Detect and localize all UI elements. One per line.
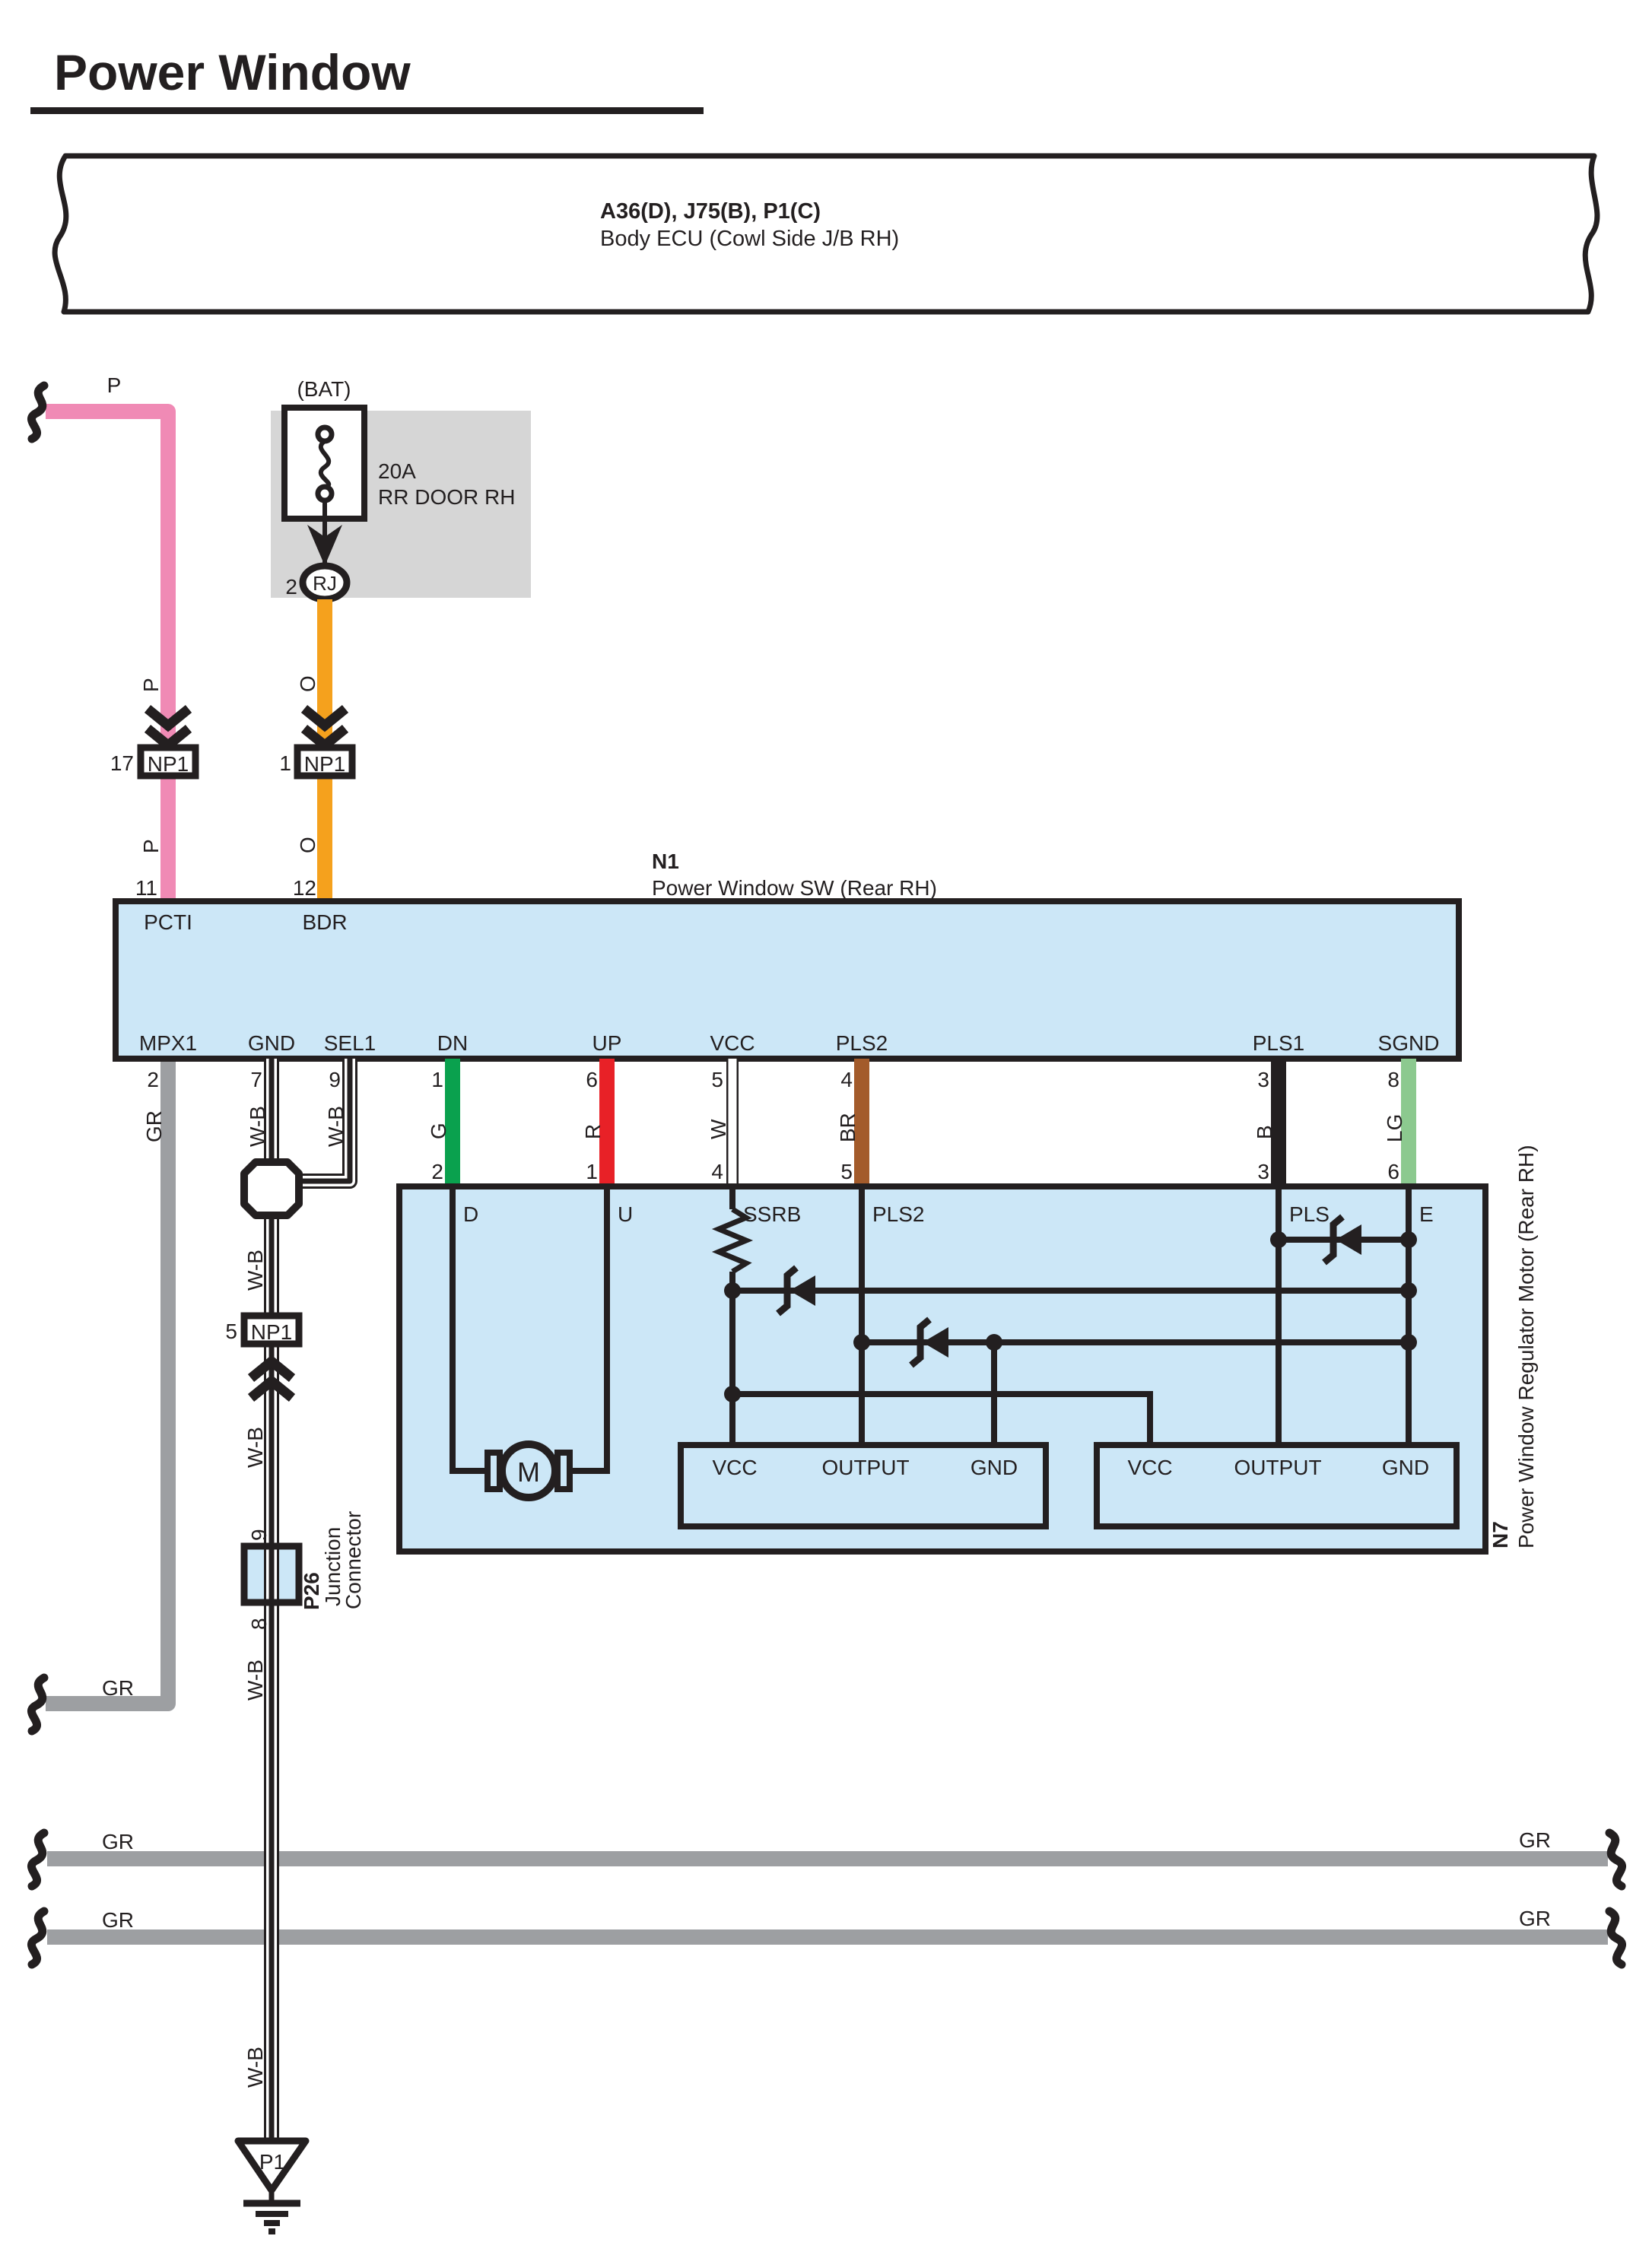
n1-name: Power Window SW (Rear RH) [652,876,937,900]
n1-pin-label: SGND [1378,1031,1440,1055]
n7-pin-label: PLS2 [872,1202,925,1226]
continuation-squiggle-icon [31,386,44,439]
wire-code: GR [142,1110,166,1142]
n1-bottom-pin-numbers: 2 7 9 1 6 5 4 3 8 [147,1068,1399,1091]
pin-number: 8 [1387,1068,1399,1091]
p26-pin-top: 9 [247,1529,271,1541]
wire-code-gr: GR [102,1676,134,1700]
junction-dot [1400,1231,1417,1248]
block-label: OUTPUT [1234,1456,1321,1479]
np1-left-label: NP1 [148,752,189,776]
rj-connector-label: RJ [313,572,337,595]
wire-code-gr: GR [1519,1907,1551,1930]
block-label: GND [1382,1456,1429,1479]
junction-dot [1400,1282,1417,1299]
n1-pin-label: DN [437,1031,468,1055]
n1-pin-label: MPX1 [139,1031,197,1055]
block-label: VCC [712,1456,757,1479]
motor-letter: M [517,1456,540,1488]
n1-pin-label: UP [592,1031,622,1055]
np1-left-pin: 17 [110,751,134,775]
n1-pin-pcti: PCTI [144,910,192,934]
wire-code-p: P [139,839,163,853]
ground-point-id: P1 [259,2150,285,2174]
ground-icon [243,2190,300,2231]
wire-code-p: P [139,678,163,692]
fuse-block: (BAT) 20A RR DOOR RH 2 RJ [271,377,531,599]
p26-id: P26 [300,1572,323,1610]
continuation-squiggle-icon [1609,1911,1622,1964]
junction-dot [724,1282,741,1299]
wire-code: B [1253,1125,1276,1139]
pin-number: 4 [711,1160,723,1183]
n7-pin-label: D [463,1202,478,1226]
ecu-banner-connectors: A36(D), J75(B), P1(C) [600,199,821,224]
np1-mid-pin: 5 [225,1320,237,1343]
junction-dot [724,1386,741,1402]
n1-pin-bdr: BDR [302,910,347,934]
n1-switch: N1 Power Window SW (Rear RH) PCTI BDR MP… [116,850,1459,1059]
n1-pin-label: PLS2 [836,1031,888,1055]
junction-dot [1400,1334,1417,1351]
wire-code: BR [836,1113,859,1142]
fuse-rating: 20A [378,459,416,483]
wire-code-wb: W-B [243,1427,267,1468]
n1-pin-11: 11 [135,876,157,900]
n7-id: N7 [1488,1521,1512,1548]
battery-feed-label: (BAT) [297,377,351,401]
pin-number: 2 [147,1068,159,1091]
wire-code-wb: W-B [243,1250,267,1291]
wire-code-gr: GR [1519,1828,1551,1852]
junction-dot [1270,1231,1287,1248]
pin-number: 3 [1257,1160,1269,1183]
n7-motor-box: D U SSRB PLS2 PLS E [399,1186,1485,1552]
wire-code-o: O [296,837,319,853]
ground-branch: W-B 5 NP1 W-B 9 P26 Junction Connector 8… [225,1162,365,2231]
n7-top-pin-numbers: 2 1 4 5 3 6 [431,1160,1399,1183]
np1-connectors-top: P O 17 NP1 1 NP1 P O 11 12 [110,675,352,900]
np1-right-pin: 1 [279,751,291,775]
pin-number: 5 [711,1068,723,1091]
np1-mid-label: NP1 [251,1320,292,1344]
wire-code-gr: GR [102,1830,134,1853]
pin-number: 3 [1257,1068,1269,1091]
wire-code: W [707,1119,730,1139]
wire-code-wb: W-B [243,2047,267,2088]
pin-number: 2 [431,1160,443,1183]
n7-pin-label: SSRB [743,1202,801,1226]
splice-octagon-icon [244,1162,299,1215]
n7-name: Power Window Regulator Motor (Rear RH) [1514,1145,1538,1548]
wire-p-pink [46,411,168,901]
wire-gr-mpx1 [46,1059,168,1704]
title-underline [30,107,704,114]
n7-pin-label: PLS [1289,1202,1330,1226]
continuation-squiggle-icon [31,1911,44,1964]
pin-number: 7 [250,1068,262,1091]
wire-code-o: O [296,675,319,692]
wire-code: W-B [324,1106,348,1147]
pin-number: 1 [431,1068,443,1091]
block-label: OUTPUT [821,1456,909,1479]
rj-pin-number: 2 [285,575,297,599]
pin-number: 6 [586,1068,598,1091]
pin-number: 6 [1387,1160,1399,1183]
wire-code-p: P [107,373,122,397]
n1-id: N1 [652,850,679,873]
n1-pin-label: GND [248,1031,295,1055]
pin-number: 1 [586,1160,598,1183]
continuation-squiggle-icon [31,1833,44,1886]
wire-code: R [581,1124,605,1139]
junction-dot [853,1334,870,1351]
wiring-diagram-page: Power Window A36(D), J75(B), P1(C) Body … [0,0,1652,2255]
wire-code: LG [1383,1114,1406,1142]
fuse-name: RR DOOR RH [378,485,515,509]
np1-right-label: NP1 [304,752,345,776]
block-label: VCC [1127,1456,1172,1479]
continuation-squiggle-icon [1609,1833,1622,1886]
p26-pin-bottom: 8 [247,1618,271,1630]
pin-number: 5 [840,1160,853,1183]
continuation-squiggle-icon [31,1678,44,1731]
wire-code: G [427,1123,450,1139]
n1-pin-label: VCC [710,1031,755,1055]
n1-pin-12: 12 [293,876,316,900]
n7-pin-label: E [1419,1202,1434,1226]
wire-code-gr: GR [102,1908,134,1932]
junction-dot [986,1334,1002,1351]
ecu-banner-name: Body ECU (Cowl Side J/B RH) [600,227,899,251]
n1-pin-label: SEL1 [324,1031,376,1055]
n7-pin-label: U [618,1202,633,1226]
pin-number: 9 [329,1068,341,1091]
pin-number: 4 [840,1068,853,1091]
page-title: Power Window [54,44,411,100]
wire-code: W-B [246,1106,269,1147]
block-label: GND [971,1456,1018,1479]
wire-code-wb: W-B [243,1659,267,1701]
n1-pin-label: PLS1 [1253,1031,1305,1055]
p26-name-line2: Connector [342,1511,365,1609]
ecu-banner: A36(D), J75(B), P1(C) Body ECU (Cowl Sid… [55,156,1597,312]
